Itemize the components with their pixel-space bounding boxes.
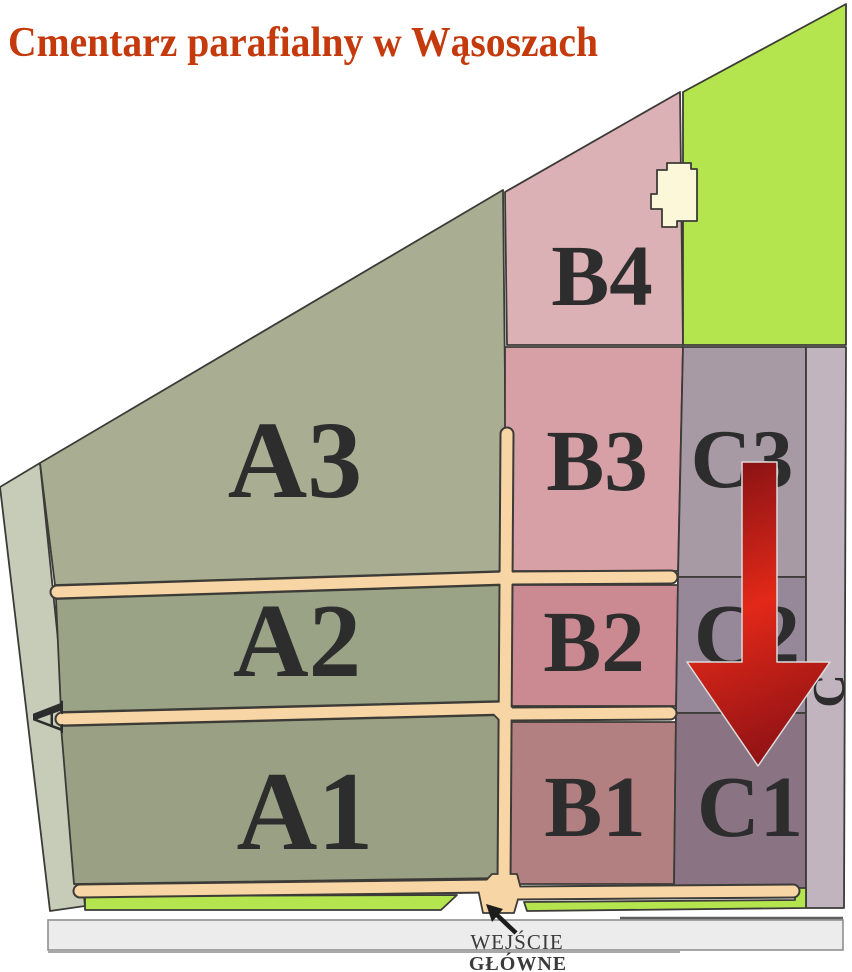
road-layer <box>48 918 843 952</box>
cemetery-map: A3 A2 A1 B4 B3 B2 B1 C3 C2 C1 A C WEJŚCI… <box>0 0 852 972</box>
road <box>48 920 843 950</box>
path-vertical <box>504 434 507 884</box>
path-bottom-right <box>516 891 793 893</box>
section-b1-label: B1 <box>544 758 646 855</box>
section-b4-label: B4 <box>551 227 653 324</box>
section-a3-label: A3 <box>228 399 362 521</box>
path-b2-b1 <box>511 713 670 714</box>
green-area-top <box>683 4 846 345</box>
path-bottom-left <box>80 886 490 891</box>
page-title: Cmentarz parafialny w Wąsoszach <box>8 20 598 66</box>
section-a2-label: A2 <box>233 582 361 699</box>
section-a3-area <box>40 190 507 585</box>
entrance-label-line2: GŁÓWNE <box>469 951 567 972</box>
cemetery-map-page: A3 A2 A1 B4 B3 B2 B1 C3 C2 C1 A C WEJŚCI… <box>0 0 852 972</box>
entrance-annotation: WEJŚCIE GŁÓWNE <box>469 904 567 972</box>
section-c1-label: C1 <box>697 758 803 855</box>
section-b3-label: B3 <box>546 412 648 509</box>
section-b2-label: B2 <box>543 593 645 690</box>
edge-strip-a-label: A <box>22 700 73 733</box>
entrance-label-line1: WEJŚCIE <box>470 930 563 954</box>
edge-strip-c-area <box>806 347 846 908</box>
path-b3-b2 <box>512 577 671 578</box>
section-a1-label: A1 <box>237 750 374 874</box>
